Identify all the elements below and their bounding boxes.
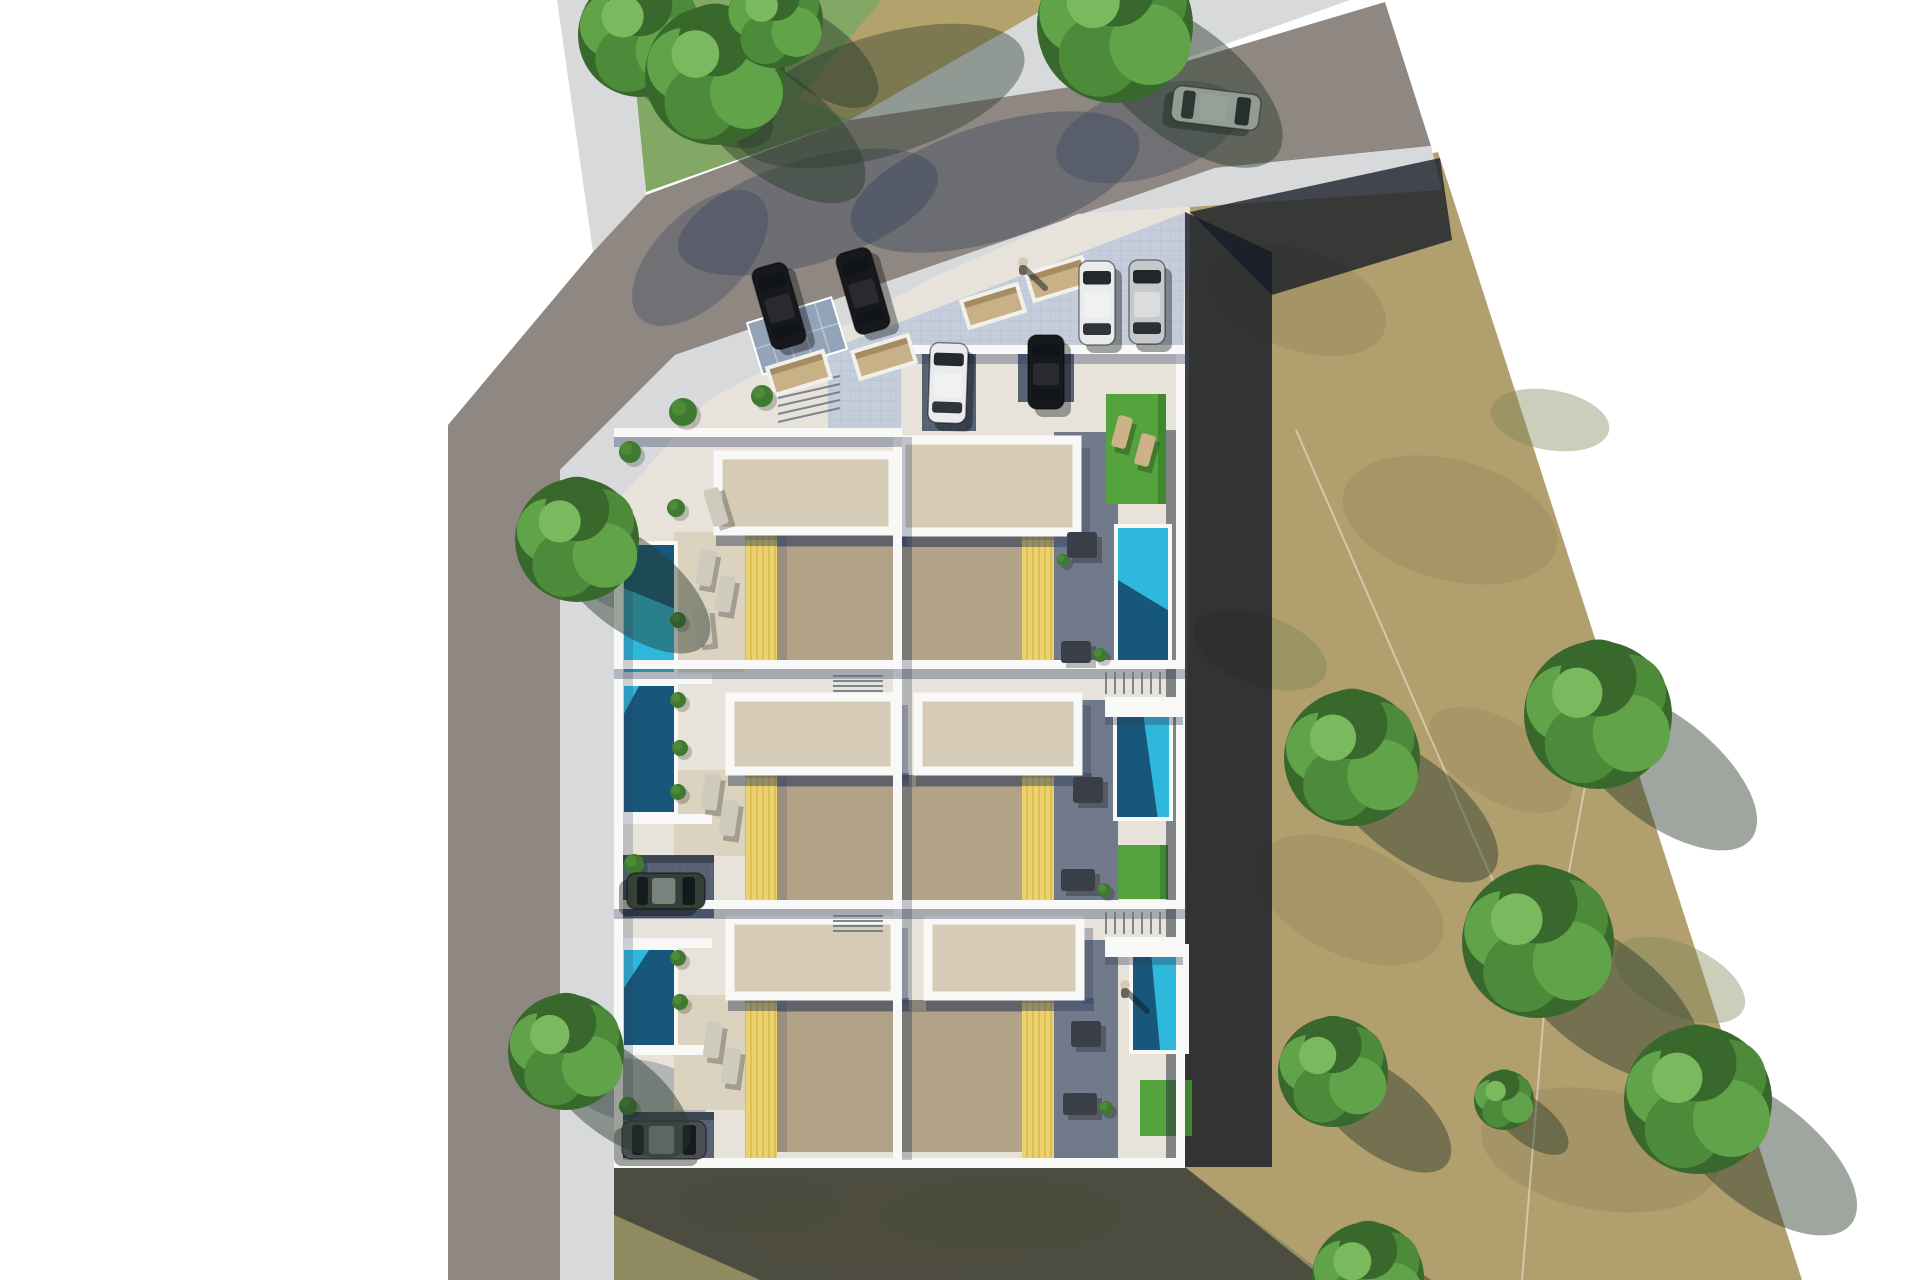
shrub-highlight bbox=[671, 693, 680, 702]
car-black-suv bbox=[1028, 335, 1071, 417]
car-parked-white bbox=[1079, 261, 1122, 353]
car-windshield bbox=[1083, 271, 1111, 284]
tree-canopy-highlight bbox=[1310, 714, 1356, 760]
roof-court bbox=[902, 775, 1022, 903]
shrub-highlight bbox=[673, 995, 682, 1004]
shrub-highlight bbox=[671, 400, 686, 415]
shrub-highlight bbox=[1098, 884, 1106, 892]
roof-court bbox=[777, 775, 893, 903]
patch-shadow bbox=[1158, 394, 1166, 504]
outdoor-furniture bbox=[1067, 532, 1102, 563]
upper-roof-terrace bbox=[918, 697, 1078, 771]
yellow-deck bbox=[745, 995, 777, 1161]
white-parapet-wall bbox=[614, 1158, 1185, 1168]
yellow-deck bbox=[1022, 995, 1054, 1161]
wall-shadow bbox=[1105, 957, 1183, 965]
car-roof bbox=[1084, 293, 1110, 318]
furniture-body bbox=[1061, 641, 1091, 663]
aerial-render-canvas bbox=[0, 0, 1920, 1280]
wall-shadow bbox=[1105, 717, 1183, 725]
car-windshield bbox=[934, 352, 964, 366]
car-parked-silver bbox=[1129, 260, 1172, 352]
shrub-highlight bbox=[621, 443, 633, 455]
tree-canopy-highlight bbox=[539, 500, 581, 542]
furniture-body bbox=[1061, 869, 1095, 891]
car-rear-window bbox=[932, 401, 962, 413]
yellow-deck bbox=[1022, 532, 1054, 665]
shrub-highlight bbox=[668, 500, 678, 510]
outdoor-furniture bbox=[1061, 641, 1096, 668]
tree-canopy-highlight bbox=[1299, 1037, 1336, 1074]
car-rear-window bbox=[1083, 323, 1111, 335]
wall-shadow bbox=[614, 669, 1185, 679]
white-parapet-wall bbox=[1105, 937, 1183, 957]
patch-shadow bbox=[1184, 1080, 1192, 1136]
staircase bbox=[1106, 912, 1160, 934]
roof-court bbox=[777, 535, 893, 663]
shrub-highlight bbox=[673, 741, 682, 750]
tree-canopy-highlight bbox=[1333, 1242, 1371, 1280]
white-parapet-wall bbox=[893, 428, 902, 1167]
court-side-shadow bbox=[777, 1000, 787, 1152]
car-roof bbox=[1033, 363, 1059, 385]
upper-roof-terrace bbox=[730, 697, 895, 771]
shrub-highlight bbox=[1094, 649, 1102, 657]
car-roof bbox=[934, 373, 963, 398]
white-parapet-wall bbox=[1176, 345, 1185, 1167]
roof-court bbox=[777, 1000, 893, 1152]
furniture-body bbox=[1073, 777, 1103, 803]
tree-canopy-highlight bbox=[672, 30, 720, 78]
court-side-shadow bbox=[777, 775, 787, 903]
shrub-highlight bbox=[1058, 555, 1065, 562]
furniture-body bbox=[1071, 1021, 1101, 1047]
yellow-deck bbox=[1022, 770, 1054, 903]
car-rear-window bbox=[1032, 389, 1060, 399]
roof-court bbox=[902, 1000, 1022, 1152]
car-windshield bbox=[683, 877, 695, 905]
shrub-highlight bbox=[753, 387, 765, 399]
tree-canopy-highlight bbox=[1491, 893, 1543, 945]
white-parapet-wall bbox=[1105, 697, 1183, 717]
car-white-suv bbox=[927, 342, 975, 432]
building-shadow-east bbox=[1185, 212, 1272, 1167]
shrub-highlight bbox=[626, 856, 637, 867]
upper-roof-terrace bbox=[928, 920, 1080, 996]
furniture-body bbox=[1067, 532, 1097, 558]
outdoor-furniture bbox=[1061, 869, 1100, 896]
roof-court bbox=[902, 535, 1022, 663]
furniture-body bbox=[1063, 1093, 1097, 1115]
white-parapet-wall bbox=[614, 428, 902, 437]
person-body bbox=[1121, 988, 1129, 998]
wall-shadow bbox=[614, 437, 902, 447]
site-plan-render bbox=[0, 0, 1920, 1280]
person-body bbox=[1019, 265, 1027, 275]
car-windshield bbox=[1032, 345, 1060, 357]
outdoor-furniture bbox=[1073, 777, 1108, 808]
shrub-highlight bbox=[671, 785, 680, 794]
car-windshield bbox=[1133, 270, 1161, 283]
outdoor-furniture bbox=[1063, 1093, 1102, 1120]
tree-canopy-highlight bbox=[530, 1015, 569, 1054]
staircase bbox=[1106, 672, 1160, 694]
wall-shadow bbox=[902, 437, 912, 1160]
car-carport-green bbox=[619, 873, 705, 916]
court-side-shadow bbox=[777, 535, 787, 663]
car-roof bbox=[1134, 292, 1160, 317]
outdoor-furniture bbox=[1071, 1021, 1106, 1052]
yellow-deck bbox=[745, 532, 777, 665]
wall-shadow bbox=[614, 909, 1185, 919]
car-rear-window bbox=[637, 877, 648, 905]
shrub-highlight bbox=[1100, 1102, 1108, 1110]
tree-canopy-highlight bbox=[1485, 1081, 1505, 1101]
car-roof bbox=[652, 878, 675, 904]
car-rear-window bbox=[1133, 322, 1161, 334]
tree-canopy-highlight bbox=[1652, 1053, 1702, 1103]
shrub-highlight bbox=[671, 951, 680, 960]
yellow-deck bbox=[745, 770, 777, 903]
tree-canopy-highlight bbox=[1552, 668, 1602, 718]
upper-roof-terrace bbox=[718, 455, 893, 531]
upper-roof-terrace bbox=[901, 440, 1077, 532]
